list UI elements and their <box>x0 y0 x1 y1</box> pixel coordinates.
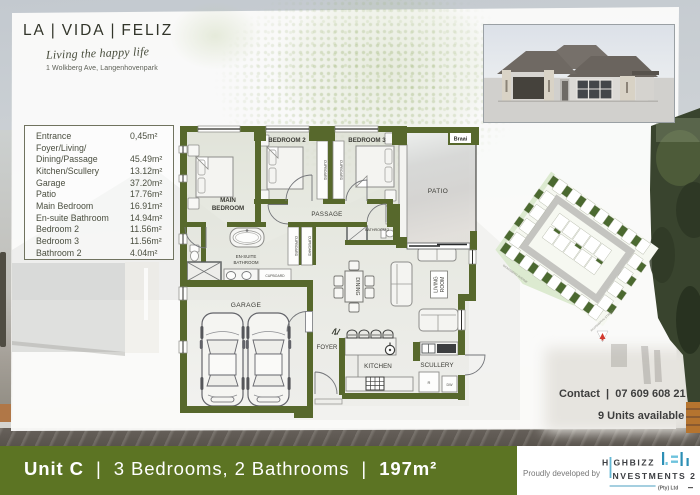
svg-text:GHBIZZ: GHBIZZ <box>614 458 656 468</box>
svg-text:NVESTMENTS 2: NVESTMENTS 2 <box>613 471 697 481</box>
svg-text:(Pty) Ltd: (Pty) Ltd <box>658 486 678 492</box>
svg-text:H: H <box>602 458 610 468</box>
